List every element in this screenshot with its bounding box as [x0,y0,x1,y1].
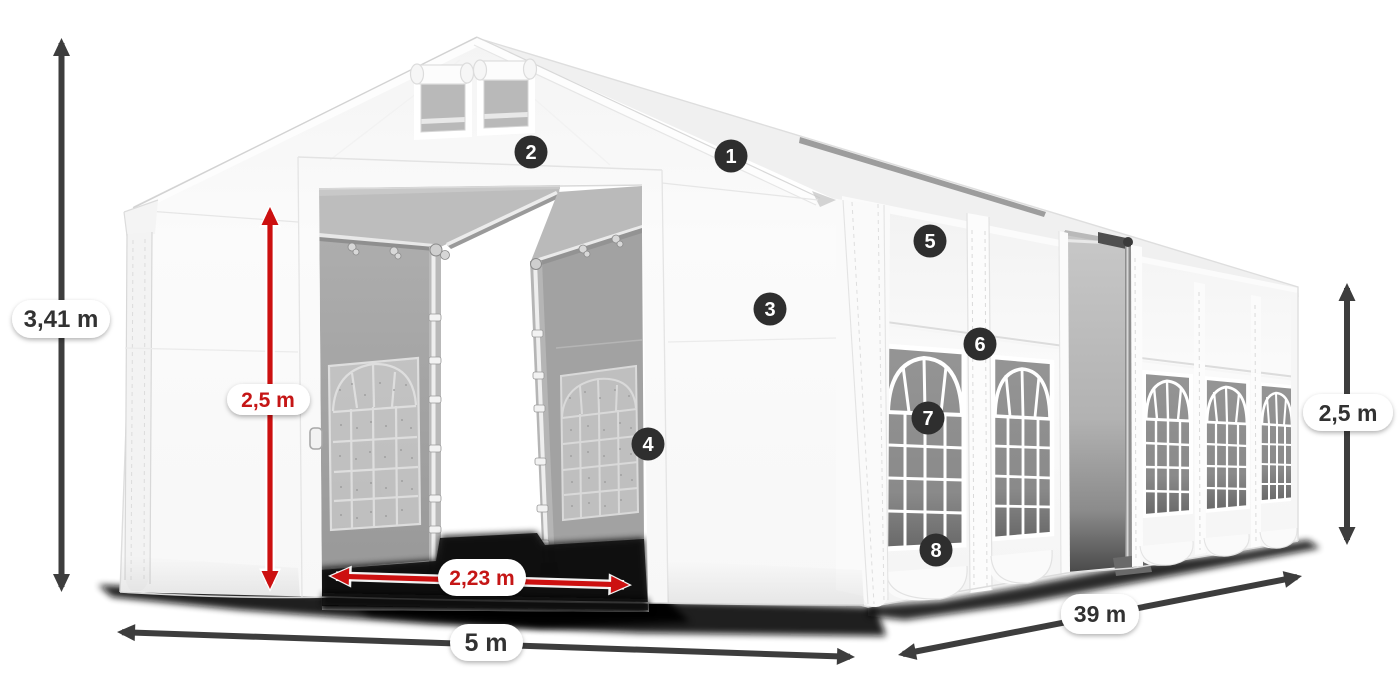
svg-text:2: 2 [525,142,536,164]
svg-text:5: 5 [924,231,935,253]
svg-text:7: 7 [922,408,933,430]
svg-text:4: 4 [642,434,654,456]
svg-text:2,5 m: 2,5 m [241,389,295,412]
svg-text:6: 6 [974,334,985,356]
svg-text:39 m: 39 m [1074,601,1126,627]
svg-text:3: 3 [764,299,775,321]
svg-text:3,41 m: 3,41 m [24,306,99,333]
svg-text:2,23 m: 2,23 m [449,567,514,590]
svg-text:8: 8 [930,540,941,562]
svg-text:1: 1 [725,146,736,168]
svg-text:2,5 m: 2,5 m [1319,400,1378,426]
svg-text:5 m: 5 m [464,629,507,657]
